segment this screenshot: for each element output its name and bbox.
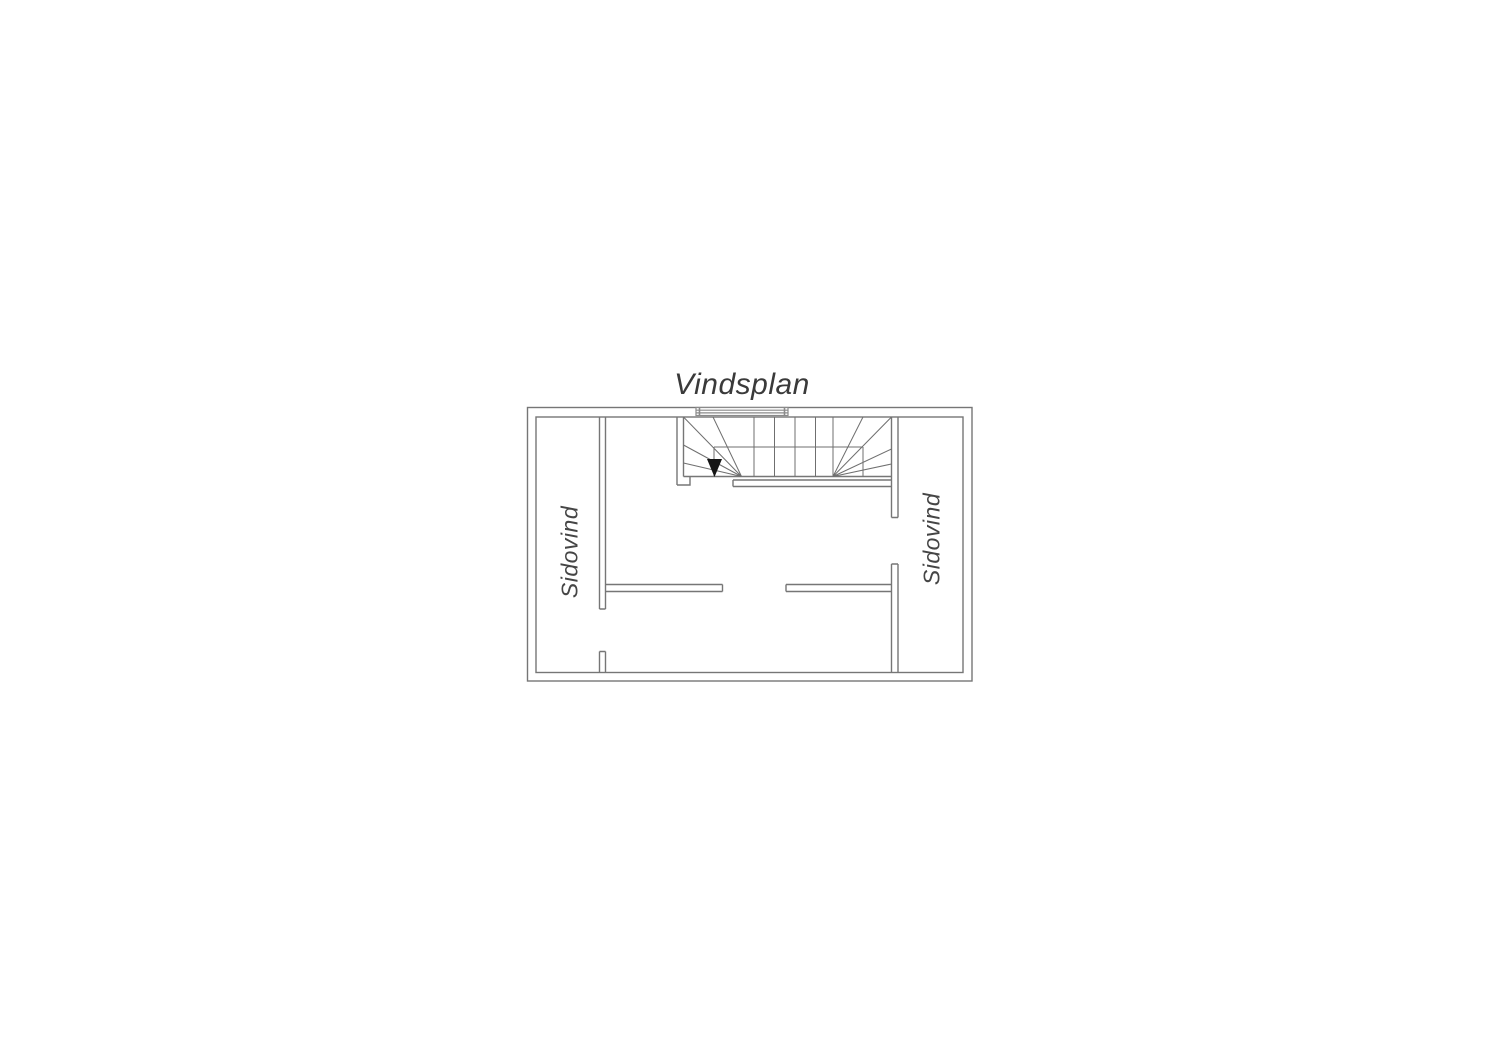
interior-horizontal-walls [606,585,892,592]
floor-plan-drawing [0,0,1500,1060]
staircase-enclosure [677,417,892,487]
right-partition-wall [892,417,899,673]
outer-wall [528,408,973,682]
stair-direction-down-arrow-icon [707,459,722,477]
window-symbol [696,408,788,416]
left-partition-wall [600,417,606,673]
floor-plan-page: Vindsplan Sidovind Sidovind [0,0,1500,1060]
